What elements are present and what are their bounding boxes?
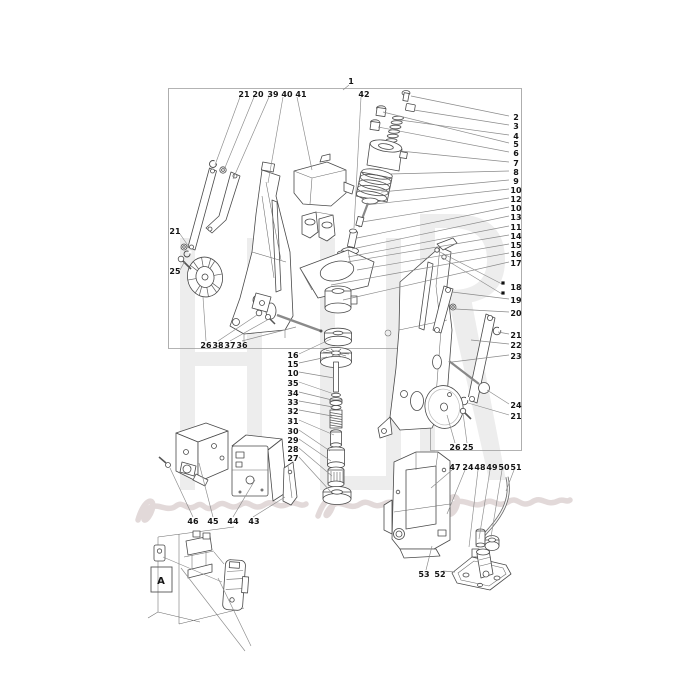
callout-label-2: 2 xyxy=(513,113,519,122)
leader-line xyxy=(383,112,509,143)
callout-label-16: 16 xyxy=(287,351,299,360)
callout-label-46: 46 xyxy=(187,517,199,526)
callout-label-41: 41 xyxy=(295,90,307,99)
callout-label-7: 7 xyxy=(513,159,519,168)
callout-label-21: 21 xyxy=(238,90,250,99)
bracket-frame-drawing xyxy=(159,423,228,486)
leader-line xyxy=(390,171,509,174)
callout-label-23: 23 xyxy=(510,352,521,361)
callout-label-24: 24 xyxy=(462,463,474,472)
callout-label-33: 33 xyxy=(287,398,298,407)
callout-label-9: 9 xyxy=(513,177,519,186)
leader-line xyxy=(414,110,509,125)
callout-label-38: 38 xyxy=(212,341,224,350)
callout-label-10: 10 xyxy=(287,369,299,378)
callout-label-10: 10 xyxy=(510,186,522,195)
leader-line xyxy=(463,413,467,443)
callout-label-36: 36 xyxy=(236,341,248,350)
diagram-canvas: 2120394041142234567891012101311141516171… xyxy=(0,0,700,700)
callout-label-45: 45 xyxy=(207,517,219,526)
callout-label-17: 17 xyxy=(510,259,521,268)
callout-label-44: 44 xyxy=(227,517,239,526)
callout-label-35: 35 xyxy=(287,379,299,388)
callout-label-52: 52 xyxy=(434,570,445,579)
callout-label-21: 21 xyxy=(510,331,522,340)
callout-label-25: 25 xyxy=(462,443,474,452)
callout-label-27: 27 xyxy=(287,454,298,463)
bullet-marker xyxy=(501,281,504,284)
callout-label-34: 34 xyxy=(287,389,299,398)
callout-label-24: 24 xyxy=(510,401,522,410)
leader-line xyxy=(354,97,361,228)
callout-label-32: 32 xyxy=(287,407,298,416)
callout-label-37: 37 xyxy=(224,341,235,350)
callout-label-16: 16 xyxy=(510,250,522,259)
exploded-parts-diagram-page: 2120394041142234567891012101311141516171… xyxy=(0,0,700,700)
callout-label-A: A xyxy=(157,576,165,587)
callout-label-13: 13 xyxy=(510,213,521,222)
callout-label-31: 31 xyxy=(287,417,299,426)
leader-line xyxy=(297,97,312,170)
callout-label-6: 6 xyxy=(513,149,519,158)
callout-label-26: 26 xyxy=(200,341,212,350)
leader-line xyxy=(400,151,509,162)
callout-label-1: 1 xyxy=(348,77,354,86)
left-frame-drawing xyxy=(230,162,293,342)
callout-label-50: 50 xyxy=(498,463,510,472)
callout-label-51: 51 xyxy=(510,463,522,472)
leader-line xyxy=(381,180,509,192)
leader-line xyxy=(224,97,254,170)
callout-label-42: 42 xyxy=(358,90,369,99)
leader-line xyxy=(411,96,509,116)
callout-label-19: 19 xyxy=(510,296,522,305)
callout-label-20: 20 xyxy=(252,90,264,99)
callout-label-22: 22 xyxy=(510,341,521,350)
callout-label-5: 5 xyxy=(513,140,519,149)
leader-line xyxy=(268,97,283,183)
callout-label-11: 11 xyxy=(510,223,522,232)
leader-line xyxy=(203,297,206,341)
callout-label-15: 15 xyxy=(287,360,299,369)
hopper-drawing xyxy=(294,154,354,241)
callout-label-3: 3 xyxy=(513,122,519,131)
callout-label-18: 18 xyxy=(510,283,522,292)
callout-label-29: 29 xyxy=(287,436,299,445)
callout-label-21: 21 xyxy=(510,412,522,421)
callout-label-26: 26 xyxy=(449,443,461,452)
callout-label-21: 21 xyxy=(169,227,181,236)
callout-label-10: 10 xyxy=(510,204,522,213)
base-plate-drawing xyxy=(452,529,511,590)
callout-label-12: 12 xyxy=(510,195,521,204)
callout-label-14: 14 xyxy=(510,232,522,241)
callout-label-25: 25 xyxy=(169,267,181,276)
bullet-marker xyxy=(501,291,504,294)
pump-housing-drawing xyxy=(384,452,450,558)
callout-label-15: 15 xyxy=(510,241,522,250)
callout-label-30: 30 xyxy=(287,427,299,436)
callout-label-8: 8 xyxy=(513,168,519,177)
callout-label-49: 49 xyxy=(486,463,498,472)
carrier-plate-drawing xyxy=(300,250,391,336)
callout-label-39: 39 xyxy=(267,90,279,99)
callout-label-20: 20 xyxy=(510,309,522,318)
callout-label-47: 47 xyxy=(449,463,460,472)
callout-label-40: 40 xyxy=(281,90,293,99)
callout-label-53: 53 xyxy=(418,570,429,579)
pump-valve-column-drawing xyxy=(338,91,416,266)
callout-label-43: 43 xyxy=(248,517,259,526)
callout-label-28: 28 xyxy=(287,445,299,454)
leader-line xyxy=(215,97,240,165)
bullet-markers xyxy=(501,281,504,294)
callout-label-48: 48 xyxy=(474,463,486,472)
